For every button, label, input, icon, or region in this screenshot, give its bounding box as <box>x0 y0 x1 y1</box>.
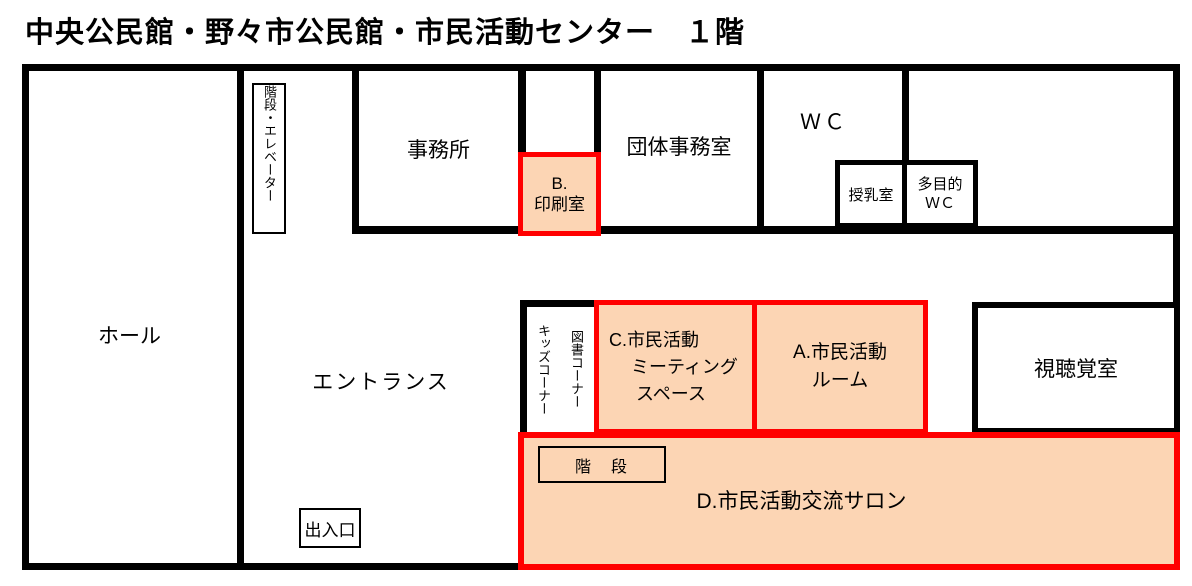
wall-top-band-bottom <box>352 226 1180 234</box>
exit-box: 出入口 <box>299 508 361 548</box>
room-activity-line2: ルーム <box>812 367 868 395</box>
room-hall: ホール <box>22 302 237 368</box>
room-meeting-space: C.市民活動 ミーティング スペース <box>594 300 760 434</box>
room-group-office: 団体事務室 <box>601 66 757 226</box>
room-nursing: 授乳室 <box>835 160 907 228</box>
room-activity: A.市民活動 ルーム <box>752 300 928 434</box>
room-activity-line1: A.市民活動 <box>793 339 887 367</box>
room-multipurpose-wc-line2: ＷＣ <box>925 194 955 213</box>
wall-kids-corner-left <box>520 300 527 436</box>
room-meeting-space-line3: スペース <box>636 381 706 408</box>
room-nursing-label: 授乳室 <box>848 184 893 205</box>
room-wc-label: ＷＣ <box>800 106 848 136</box>
wall-hall-right <box>237 64 244 570</box>
room-print: B. 印刷室 <box>518 152 601 236</box>
book-corner-label: 図書コーナー <box>560 307 593 431</box>
room-meeting-space-line2: ミーティング <box>631 354 738 381</box>
room-stairs-elevator-label: 階段・エレベーター <box>254 85 284 202</box>
room-entrance-hall-label: エントランス <box>312 366 450 396</box>
room-stairs-elevator: 階段・エレベーター <box>252 83 286 234</box>
room-office: 事務所 <box>359 72 518 226</box>
room-multipurpose-wc: 多目的 ＷＣ <box>902 160 978 228</box>
floor-plan: 中央公民館・野々市公民館・市民活動センター １階 ホール 事務所 団体事務室 Ｗ… <box>0 0 1192 586</box>
room-salon: 階 段 D.市民活動交流サロン <box>518 432 1180 570</box>
room-av: 視聴覚室 <box>972 302 1180 434</box>
wall-office-right <box>518 64 526 156</box>
inner-stairs-box: 階 段 <box>538 446 666 483</box>
room-office-label: 事務所 <box>407 134 470 164</box>
wall-office-left <box>352 64 359 234</box>
room-print-line1: B. <box>551 173 567 194</box>
room-multipurpose-wc-line1: 多目的 <box>917 175 962 194</box>
wall-wc-right <box>902 64 909 164</box>
inner-stairs-label: 階 段 <box>575 453 629 477</box>
room-kids-book-corner: 図書コーナー キッズコーナー <box>527 307 593 431</box>
room-meeting-space-line1: C.市民活動 <box>609 327 699 354</box>
kids-corner-label: キッズコーナー <box>527 307 560 431</box>
room-salon-label: D.市民活動交流サロン <box>524 485 1079 515</box>
room-hall-label: ホール <box>98 320 161 350</box>
page-title: 中央公民館・野々市公民館・市民活動センター １階 <box>25 9 745 51</box>
exit-label: 出入口 <box>305 516 356 541</box>
room-group-office-label: 団体事務室 <box>627 131 732 161</box>
wall-group-office-right <box>757 64 764 230</box>
wall-kids-corner-top <box>520 300 598 307</box>
room-av-label: 視聴覚室 <box>1034 353 1118 383</box>
room-print-line2: 印刷室 <box>534 194 585 215</box>
room-entrance-hall: エントランス <box>244 352 518 410</box>
